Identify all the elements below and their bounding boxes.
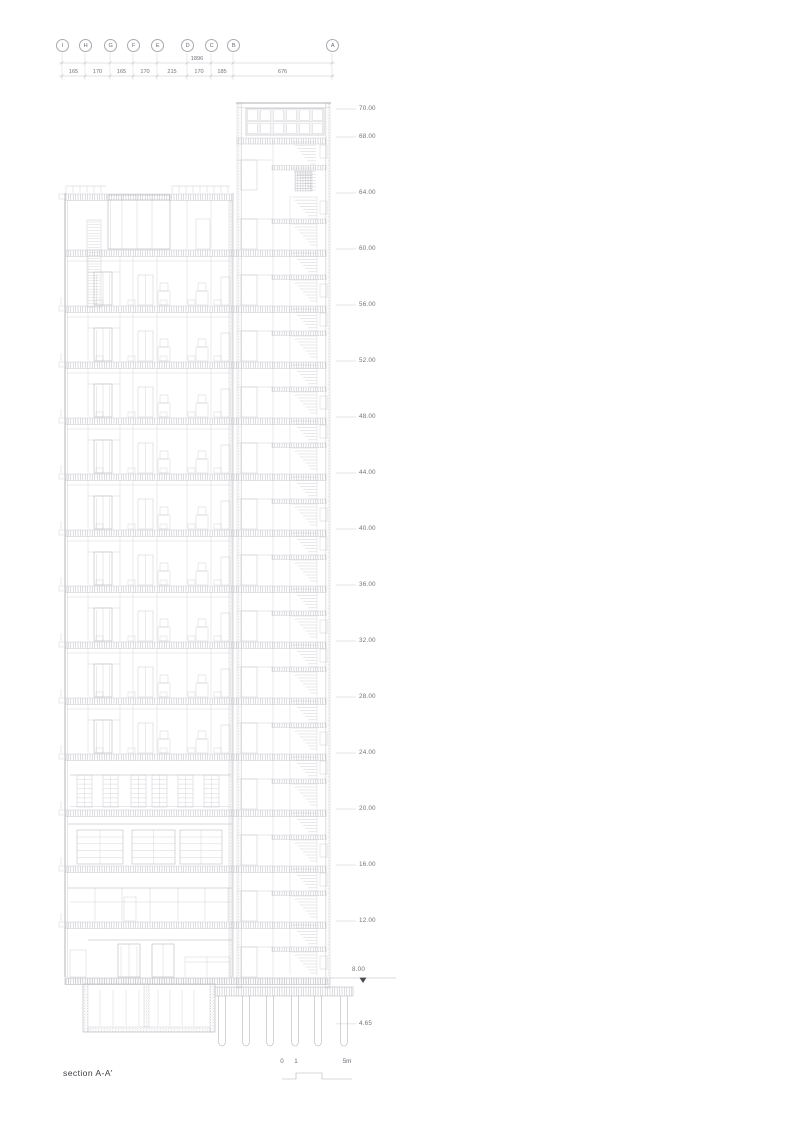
section-title: section A-A'	[63, 1068, 113, 1078]
blueprint-canvas: IHGFEDCBA 1896165170165170215170185676 7…	[0, 0, 800, 1131]
section-drawing	[0, 0, 800, 1131]
